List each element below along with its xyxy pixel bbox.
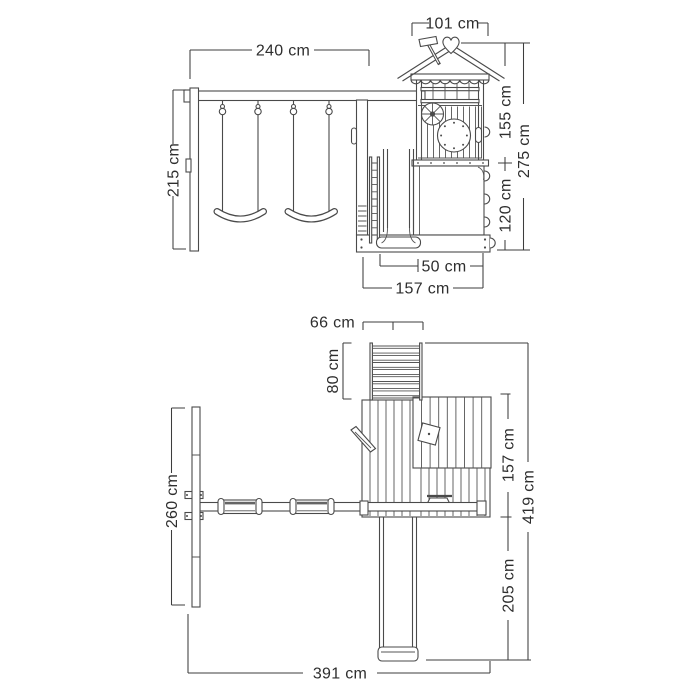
post-anchor: [186, 159, 191, 172]
dim-label-260cm: 260 cm: [164, 474, 181, 528]
dim-label-205cm: 205 cm: [501, 558, 518, 612]
dim-ladder-width: 66 cm: [310, 315, 423, 332]
slide-top: [378, 517, 418, 661]
swing-left: [217, 101, 264, 220]
roof-scallops: [411, 80, 489, 84]
beam-plate-left: [360, 501, 368, 515]
dim-ladder-depth: 80 cm: [325, 343, 352, 399]
dim-label-120cm: 120 cm: [498, 178, 515, 232]
plan-view: 66 cm 80 cm 260 cm 157 cm 419 cm 205 cm …: [164, 315, 538, 683]
dim-frame-height: 215 cm: [166, 90, 187, 249]
tower-ladder: [370, 157, 380, 243]
heart-decoration: [443, 37, 459, 53]
swing-beam: [189, 91, 425, 101]
platform-floor: [412, 160, 489, 166]
wall-rail-upper: [421, 88, 479, 91]
porthole-window: [438, 119, 471, 152]
dim-label-240cm: 240 cm: [256, 43, 310, 60]
beam-plate-right: [477, 501, 486, 515]
lower-panel: [414, 166, 485, 235]
flag-decoration: [419, 37, 440, 65]
dim-total-width: 391 cm: [188, 614, 490, 683]
dim-label-391cm: 391 cm: [313, 666, 367, 683]
dim-label-66cm: 66 cm: [310, 315, 355, 332]
dim-label-155cm: 155 cm: [498, 85, 515, 139]
dim-label-275cm: 275 cm: [516, 124, 533, 178]
dim-label-157cm-side: 157 cm: [395, 281, 449, 298]
dim-frame-span: 260 cm: [164, 408, 185, 605]
swing-seat-left-top: [218, 499, 262, 515]
playset-diagram: 240 cm 215 cm 101 cm 155 cm 120 cm 275 c…: [0, 0, 700, 700]
dim-total-height: 275 cm: [516, 43, 533, 250]
roof-hatch: [418, 423, 440, 445]
dim-roof-width: 101 cm: [412, 16, 488, 37]
dim-beam-width: 240 cm: [190, 43, 369, 80]
dim-label-80cm: 80 cm: [325, 348, 342, 393]
dim-label-50cm: 50 cm: [421, 259, 466, 276]
swing-seat-right-top: [290, 499, 334, 515]
tower-rear-panel: [357, 100, 368, 235]
wall-handle: [476, 128, 482, 143]
side-elevation-view: 240 cm 215 cm 101 cm 155 cm 120 cm 275 c…: [166, 16, 534, 298]
steering-wheel: [422, 103, 444, 125]
dimension-drawing-canvas: 240 cm 215 cm 101 cm 155 cm 120 cm 275 c…: [0, 0, 700, 700]
dim-tower-depth-plan: 157 cm: [501, 394, 518, 517]
rear-handle: [352, 128, 357, 144]
ladder-top: [370, 343, 422, 400]
dim-slide-exit-width: 50 cm: [380, 253, 483, 276]
dim-label-215cm: 215 cm: [166, 143, 183, 197]
dim-label-419cm: 419 cm: [521, 470, 538, 524]
swing-right: [288, 101, 335, 220]
wall-rail-lower: [421, 100, 479, 103]
roof-trim-band: [411, 74, 489, 80]
climbing-stones: [485, 127, 496, 248]
dim-slide-length: 205 cm: [426, 517, 518, 660]
dim-label-157cm-plan: 157 cm: [501, 428, 518, 482]
swing-post-top: [192, 407, 200, 607]
dim-label-101cm: 101 cm: [425, 16, 479, 33]
